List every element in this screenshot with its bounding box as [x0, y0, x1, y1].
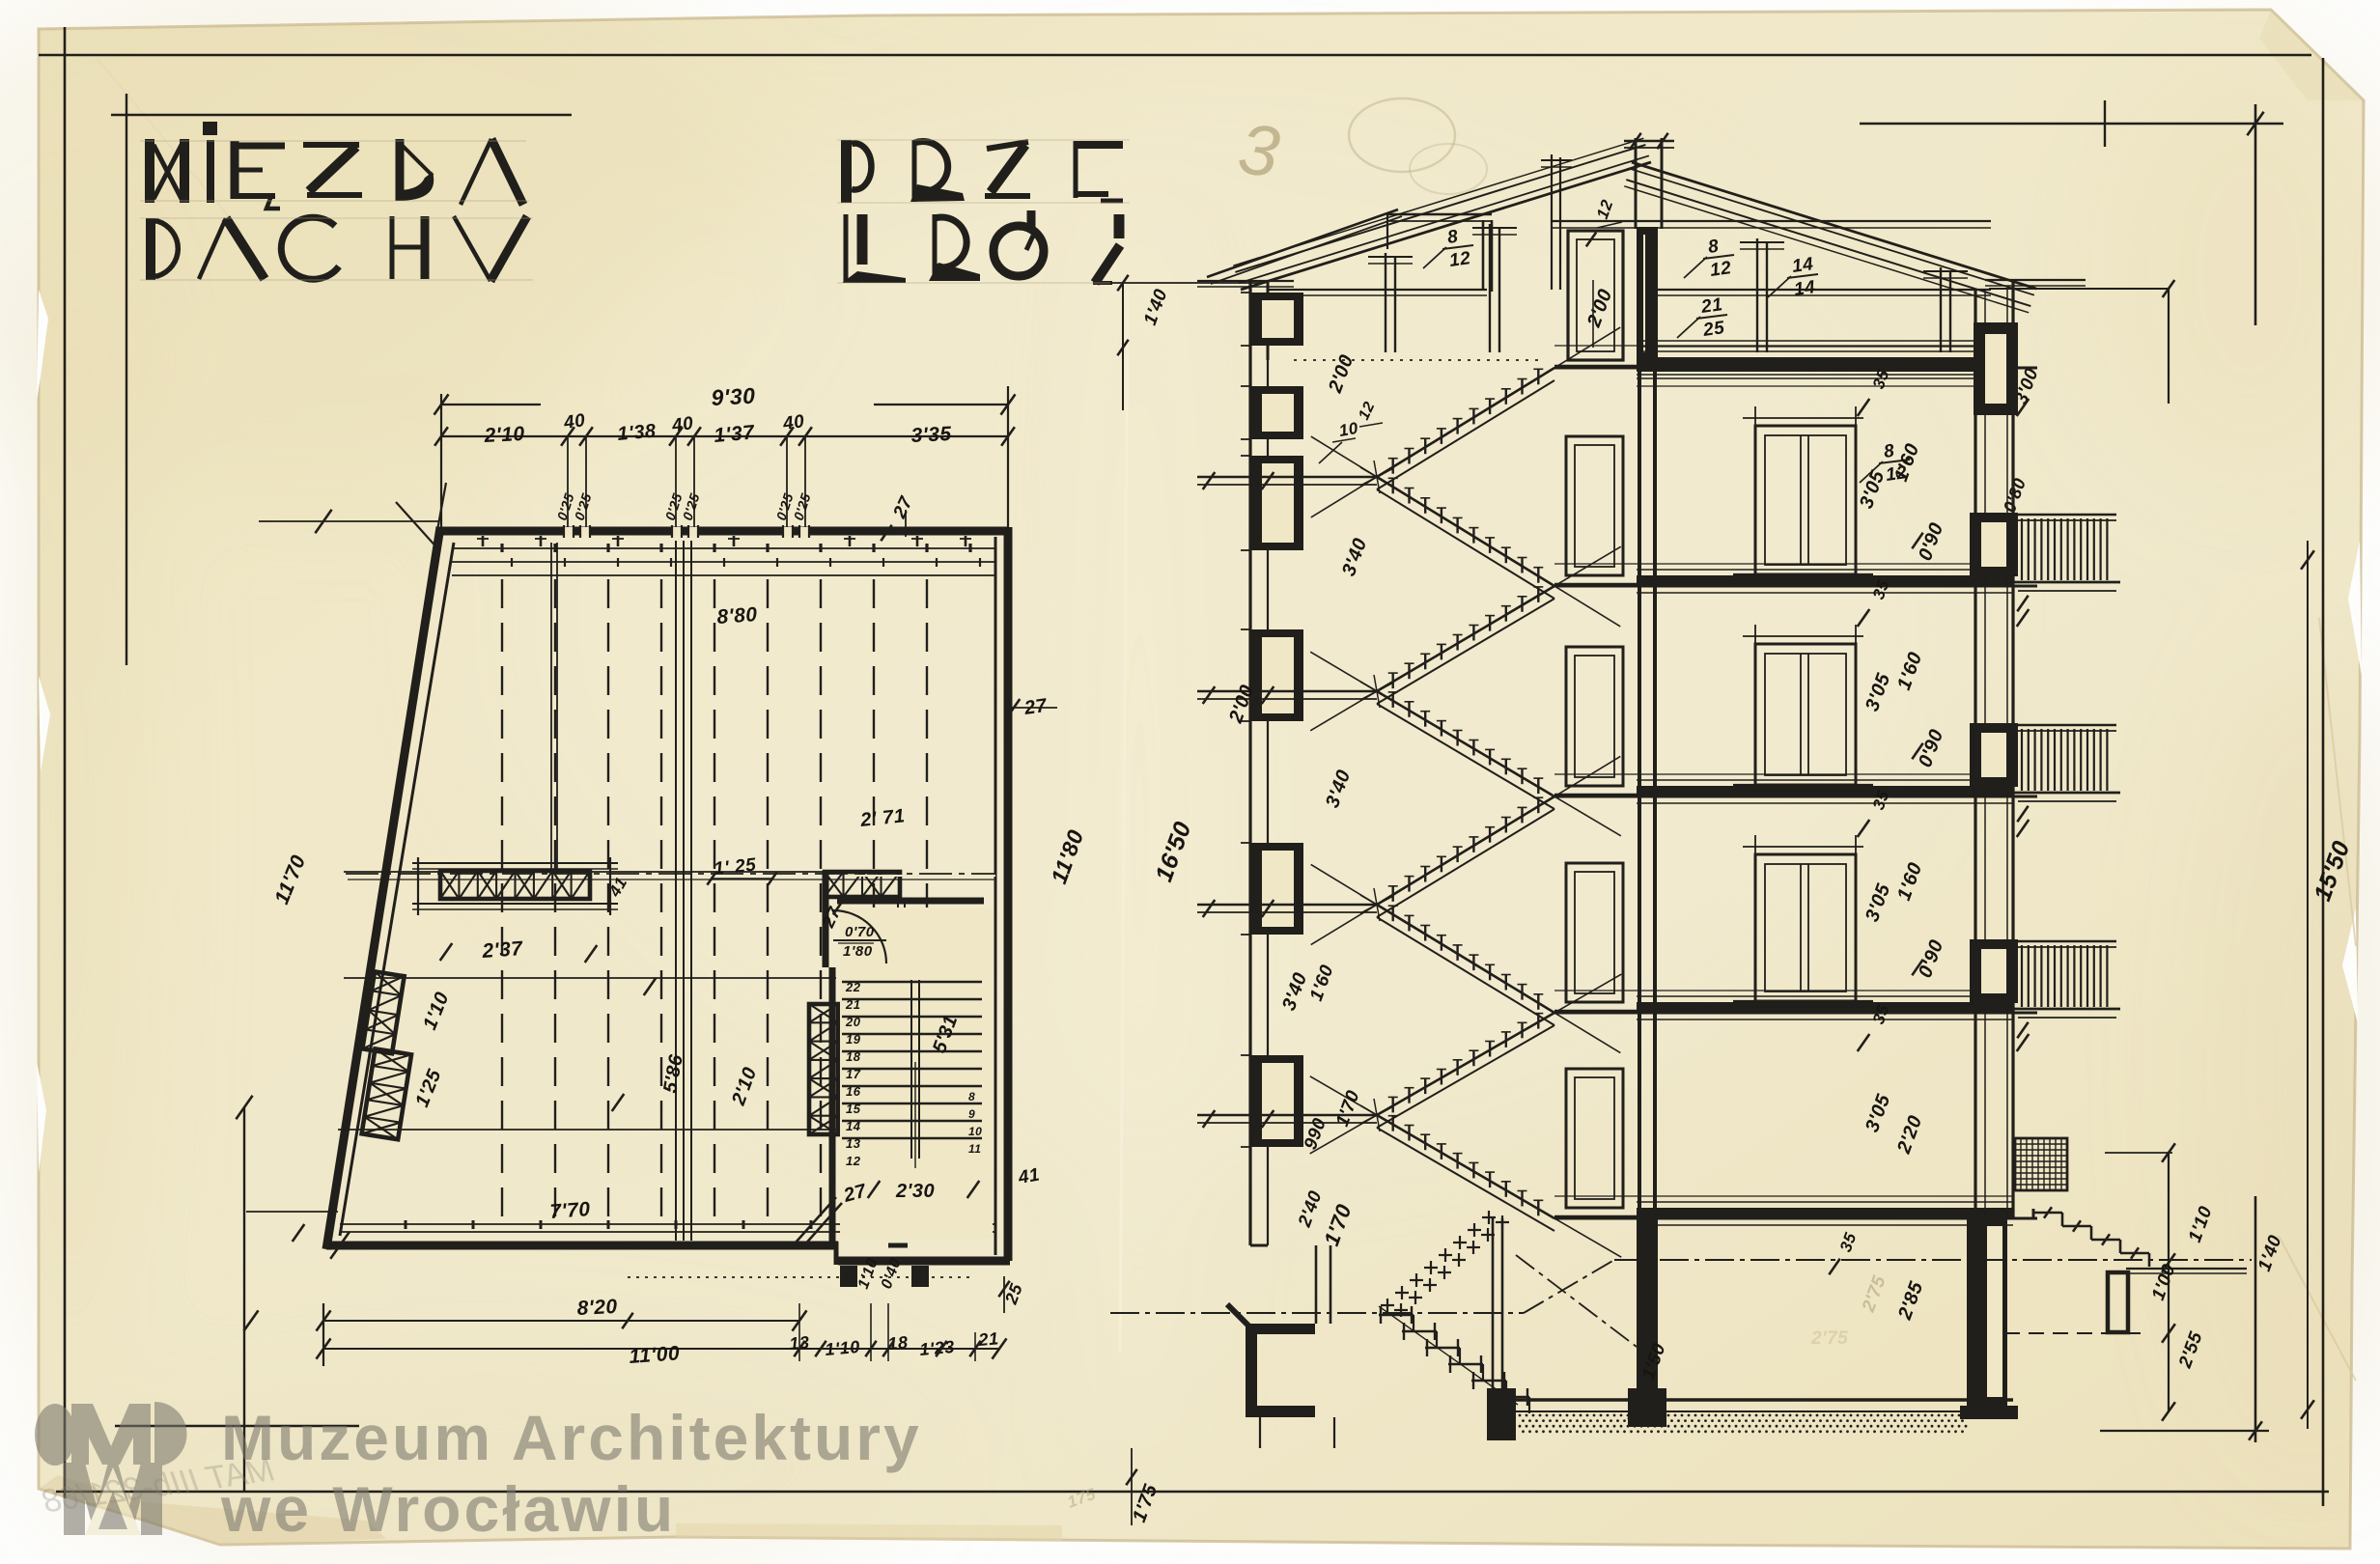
svg-text:19: 19 [846, 1032, 861, 1047]
svg-text:0'70: 0'70 [845, 924, 875, 940]
svg-text:25: 25 [1701, 318, 1726, 341]
svg-text:40: 40 [781, 411, 806, 434]
svg-text:20: 20 [845, 1015, 861, 1029]
svg-text:12: 12 [1709, 258, 1733, 281]
svg-text:14: 14 [1791, 254, 1815, 277]
svg-text:18: 18 [846, 1049, 861, 1064]
svg-text:9: 9 [968, 1107, 975, 1121]
svg-text:21: 21 [977, 1328, 1000, 1350]
svg-text:7'70: 7'70 [549, 1198, 592, 1223]
svg-text:12: 12 [1448, 248, 1472, 271]
svg-text:14: 14 [1793, 277, 1817, 300]
svg-text:14: 14 [846, 1119, 861, 1133]
svg-text:1'80: 1'80 [843, 943, 873, 960]
svg-text:3'35: 3'35 [910, 423, 952, 447]
svg-text:8'80: 8'80 [716, 603, 759, 628]
svg-text:2'37: 2'37 [481, 937, 524, 963]
svg-text:11'00: 11'00 [629, 1342, 681, 1368]
svg-text:8: 8 [968, 1090, 975, 1103]
svg-text:9'30: 9'30 [711, 383, 756, 410]
svg-text:1'38: 1'38 [617, 421, 658, 445]
svg-text:18: 18 [887, 1332, 910, 1354]
svg-text:11: 11 [968, 1142, 981, 1156]
svg-text:41: 41 [1016, 1164, 1041, 1188]
svg-text:1'10: 1'10 [825, 1337, 861, 1359]
svg-text:17: 17 [846, 1067, 861, 1081]
svg-text:21: 21 [1699, 294, 1724, 318]
svg-text:10: 10 [1337, 419, 1359, 440]
svg-text:15: 15 [846, 1102, 861, 1116]
svg-text:2'30: 2'30 [895, 1181, 935, 1202]
svg-text:40: 40 [670, 413, 695, 436]
svg-text:8'20: 8'20 [576, 1296, 618, 1320]
svg-text:21: 21 [845, 997, 860, 1012]
svg-text:1'37: 1'37 [713, 421, 756, 447]
svg-text:22: 22 [845, 980, 861, 994]
svg-text:2'75: 2'75 [1810, 1328, 1848, 1349]
svg-text:12: 12 [846, 1154, 861, 1168]
svg-text:Muzeum Architektury: Muzeum Architektury [221, 1402, 922, 1473]
svg-text:we Wrocławiu: we Wrocławiu [220, 1473, 676, 1545]
svg-text:13: 13 [846, 1136, 861, 1151]
svg-text:10: 10 [968, 1125, 982, 1138]
svg-text:40: 40 [562, 410, 587, 433]
svg-text:16: 16 [846, 1084, 861, 1099]
svg-text:2'10: 2'10 [483, 423, 525, 447]
